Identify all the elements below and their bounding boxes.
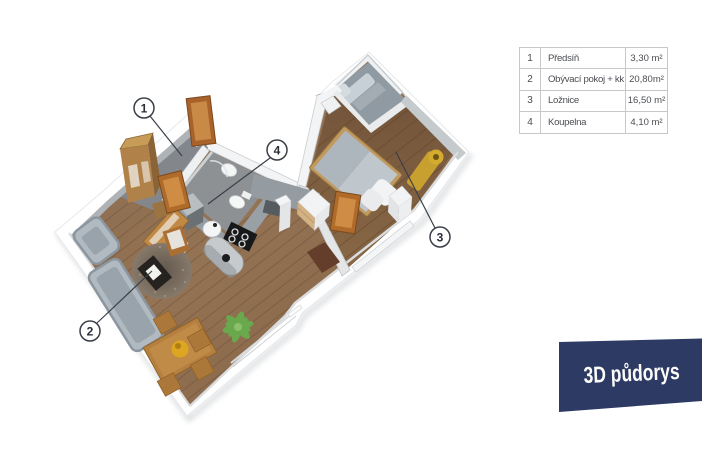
- svg-text:2: 2: [87, 325, 94, 339]
- svg-text:1: 1: [141, 102, 148, 116]
- svg-text:3: 3: [437, 231, 444, 245]
- svg-text:4: 4: [274, 144, 281, 158]
